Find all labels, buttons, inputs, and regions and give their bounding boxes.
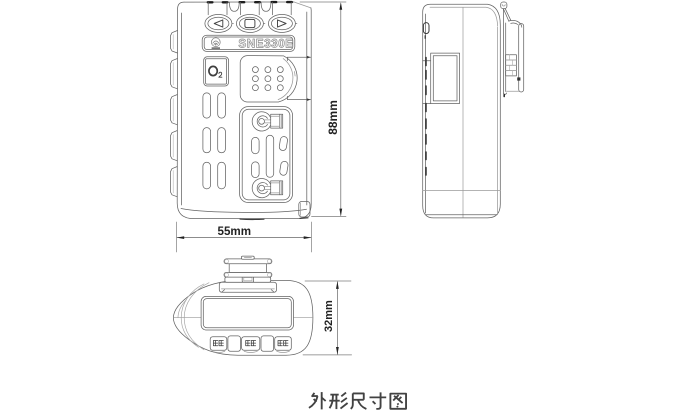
svg-text:32mm: 32mm bbox=[323, 300, 335, 332]
svg-text:SNE330E: SNE330E bbox=[238, 37, 293, 51]
svg-text:88mm: 88mm bbox=[326, 100, 340, 135]
svg-text:55mm: 55mm bbox=[218, 225, 252, 238]
